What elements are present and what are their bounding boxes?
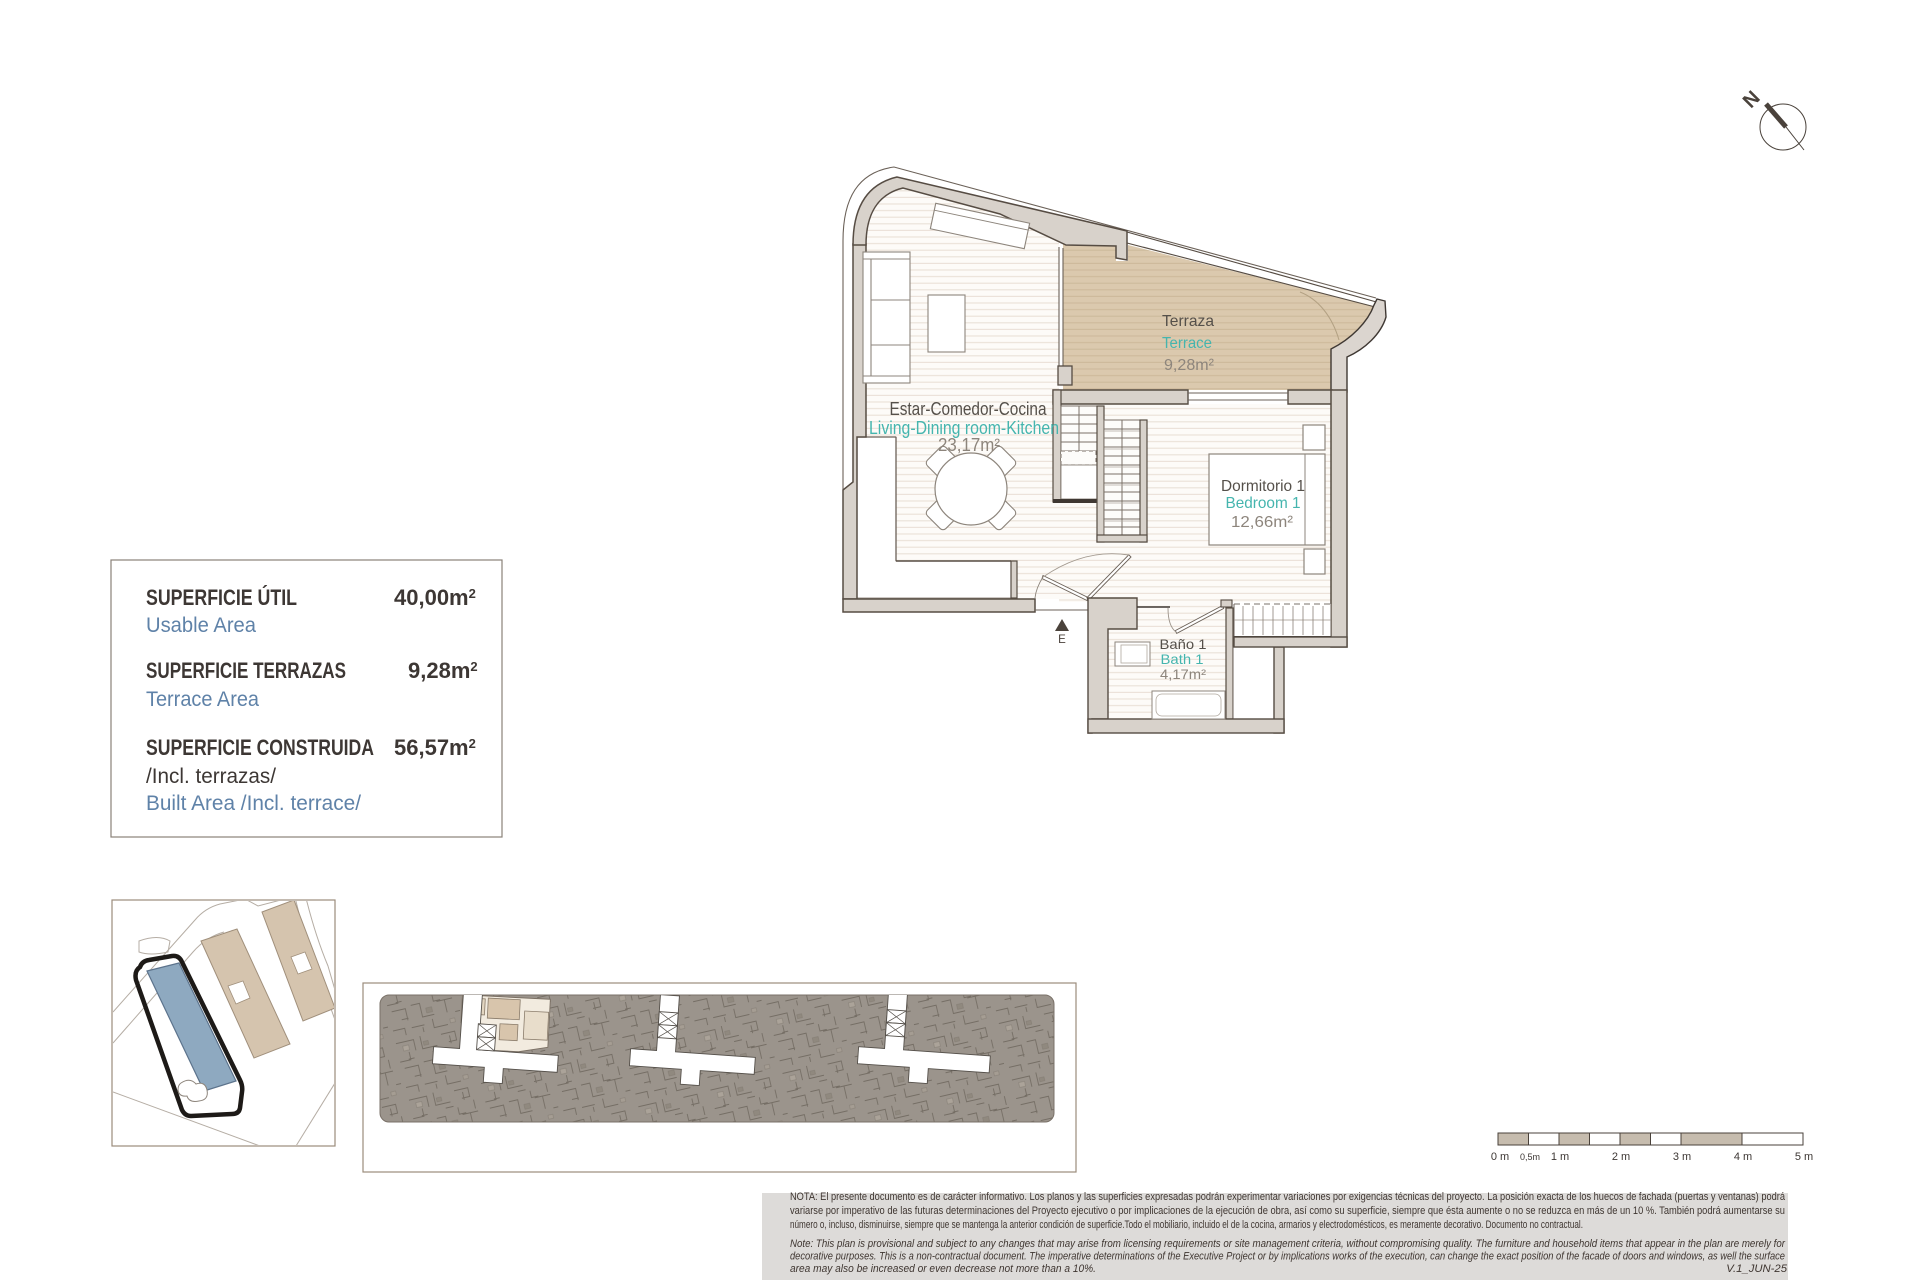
svg-text:Bath 1: Bath 1 bbox=[1161, 651, 1204, 667]
svg-text:0,5m: 0,5m bbox=[1520, 1152, 1540, 1162]
svg-text:5 m: 5 m bbox=[1795, 1151, 1813, 1163]
svg-text:23,17m²: 23,17m² bbox=[938, 435, 1000, 455]
svg-text:variarse por imperativo de las: variarse por imperativo de las futuras d… bbox=[790, 1205, 1785, 1217]
svg-text:1 m: 1 m bbox=[1551, 1151, 1569, 1163]
svg-text:12,66m²: 12,66m² bbox=[1231, 514, 1294, 531]
svg-text:NOTA: El presente documento e: NOTA: El presente documento es de caráct… bbox=[790, 1191, 1786, 1203]
svg-text:SUPERFICIE ÚTIL: SUPERFICIE ÚTIL bbox=[146, 585, 297, 610]
svg-text:Estar-Comedor-Cocina: Estar-Comedor-Cocina bbox=[890, 399, 1048, 419]
svg-text:Baño 1: Baño 1 bbox=[1160, 636, 1207, 652]
svg-text:N: N bbox=[1739, 87, 1765, 113]
svg-text:Terrace: Terrace bbox=[1162, 335, 1212, 352]
svg-text:9,28m2: 9,28m2 bbox=[408, 658, 478, 683]
svg-text:3 m: 3 m bbox=[1673, 1151, 1691, 1163]
svg-text:40,00m2: 40,00m2 bbox=[394, 585, 476, 610]
svg-text:Bedroom 1: Bedroom 1 bbox=[1226, 495, 1301, 512]
svg-text:56,57m2: 56,57m2 bbox=[394, 735, 476, 760]
svg-text:0 m: 0 m bbox=[1491, 1151, 1509, 1163]
svg-text:E: E bbox=[1058, 634, 1066, 646]
svg-text:Dormitorio 1: Dormitorio 1 bbox=[1221, 478, 1305, 495]
svg-text:4,17m²: 4,17m² bbox=[1160, 666, 1206, 682]
svg-text:Usable Area: Usable Area bbox=[146, 614, 256, 637]
svg-text:decorative purposes. This is a: decorative purposes. This is a non-contr… bbox=[790, 1251, 1785, 1263]
svg-text:/Incl. terrazas/: /Incl. terrazas/ bbox=[146, 765, 276, 788]
svg-text:V.1_JUN-25: V.1_JUN-25 bbox=[1726, 1263, 1787, 1275]
svg-text:número o, incluso, disminuirse: número o, incluso, disminuirse, siempre … bbox=[790, 1219, 1583, 1231]
svg-text:Built Area /Incl. terrace/: Built Area /Incl. terrace/ bbox=[146, 792, 361, 815]
svg-text:2 m: 2 m bbox=[1612, 1151, 1630, 1163]
svg-text:4 m: 4 m bbox=[1734, 1151, 1752, 1163]
svg-text:Terrace Area: Terrace Area bbox=[146, 688, 259, 711]
svg-text:9,28m²: 9,28m² bbox=[1164, 357, 1215, 374]
svg-text:Terraza: Terraza bbox=[1162, 313, 1214, 330]
svg-text:area may also be increased or: area may also be increased or even decre… bbox=[790, 1263, 1096, 1275]
svg-text:Note: This plan is provisional: Note: This plan is provisional and subje… bbox=[790, 1238, 1786, 1250]
svg-text:SUPERFICIE TERRAZAS: SUPERFICIE TERRAZAS bbox=[146, 658, 346, 683]
svg-text:SUPERFICIE CONSTRUIDA: SUPERFICIE CONSTRUIDA bbox=[146, 735, 374, 760]
